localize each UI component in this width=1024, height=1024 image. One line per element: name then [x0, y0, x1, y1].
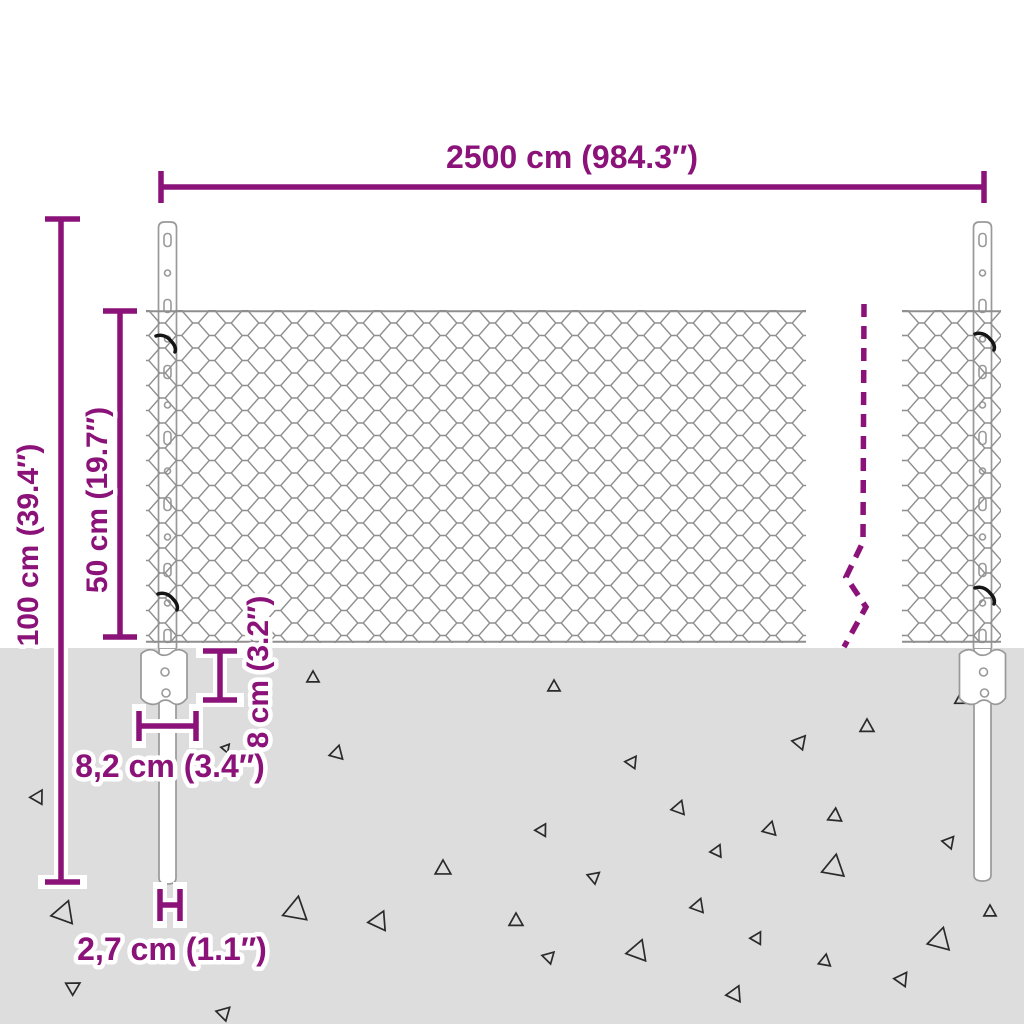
fence-width-dimension-line [161, 171, 984, 203]
fence-mesh-main [146, 310, 806, 643]
right-anchor-plate-hole [981, 689, 989, 697]
post-hole [980, 270, 986, 276]
fence-width-label: 2500 cm (984.3″) [446, 139, 698, 175]
post-hole [165, 270, 171, 276]
left-anchor-plate-hole [162, 689, 170, 697]
anchor-depth-label: 8 cm (3.2″) [242, 596, 275, 749]
right-anchor-plate-hole [980, 668, 988, 676]
left-anchor-plate-hole [161, 668, 169, 676]
post-slot [979, 234, 986, 247]
fence-dimension-diagram: 2500 cm (984.3″) 100 cm (39.4″) 50 cm (1… [0, 0, 1024, 1024]
mesh-fabric-right [902, 310, 1001, 643]
dimension-mesh-height: 50 cm (19.7″) [81, 311, 137, 637]
post-height-label: 100 cm (39.4″) [12, 444, 45, 647]
post-slot [164, 234, 171, 247]
break-line [844, 304, 866, 647]
dimension-fence-width: 2500 cm (984.3″) [161, 139, 984, 203]
fence-mesh-right [902, 310, 1001, 643]
mesh-height-label: 50 cm (19.7″) [81, 407, 114, 593]
post-diameter-label: 2,7 cm (1.1″) [77, 931, 267, 967]
mesh-fabric [146, 310, 806, 643]
anchor-width-label: 8,2 cm (3.4″) [75, 748, 265, 784]
